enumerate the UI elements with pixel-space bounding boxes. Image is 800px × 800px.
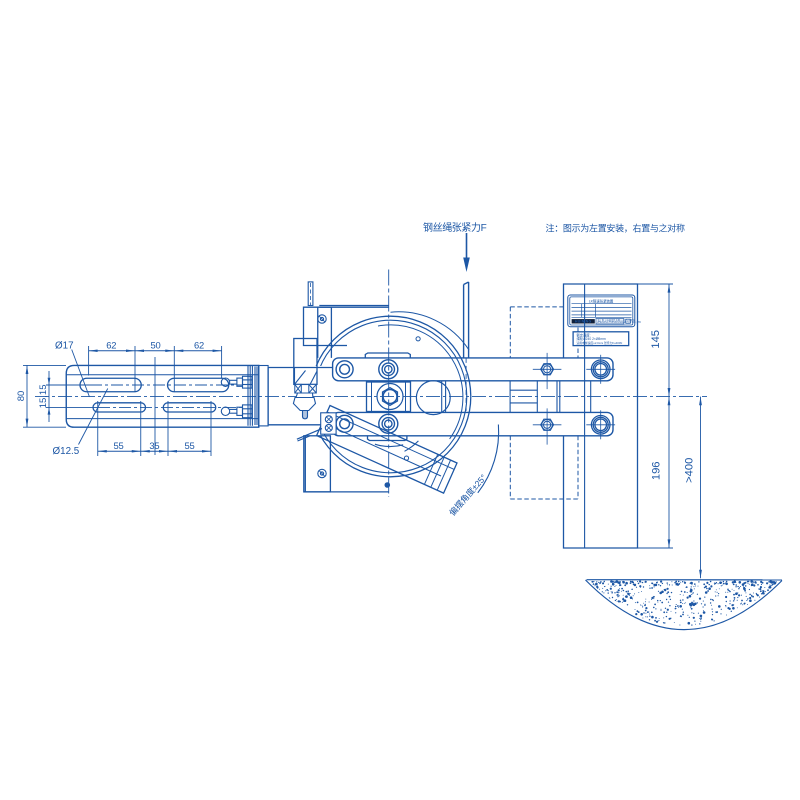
svg-text:80: 80 <box>16 391 27 402</box>
svg-text:Ø12.5: Ø12.5 <box>53 446 80 457</box>
svg-text:145: 145 <box>650 330 662 349</box>
svg-text:适用电梯速度≤2.0m/s 张紧力F≥400N: 适用电梯速度≤2.0m/s 张紧力F≥400N <box>577 341 623 345</box>
svg-text:HUINING: HUINING <box>575 320 591 324</box>
svg-text:Ø17: Ø17 <box>55 341 74 352</box>
svg-text:55: 55 <box>113 440 123 451</box>
svg-text:55: 55 <box>184 440 194 451</box>
svg-text:>400: >400 <box>683 458 695 483</box>
svg-text:偏摆角度±25°: 偏摆角度±25° <box>447 472 488 517</box>
svg-text:62: 62 <box>106 339 116 350</box>
svg-text:注：图示为左置安装，右置与之对称: 注：图示为左置安装，右置与之对称 <box>546 223 686 234</box>
svg-text:50: 50 <box>150 339 160 350</box>
svg-text:ZHEJIANG HUINING ELEVATOR CO.,: ZHEJIANG HUINING ELEVATOR CO.,LTD <box>597 321 641 324</box>
svg-text:35: 35 <box>149 440 159 451</box>
svg-text:196: 196 <box>650 461 662 480</box>
svg-text:15,15: 15,15 <box>38 385 49 409</box>
svg-text:62: 62 <box>194 339 204 350</box>
svg-text:LK限速张紧装置: LK限速张紧装置 <box>589 299 614 304</box>
svg-text:钢丝绳张紧力F: 钢丝绳张紧力F <box>423 221 487 234</box>
